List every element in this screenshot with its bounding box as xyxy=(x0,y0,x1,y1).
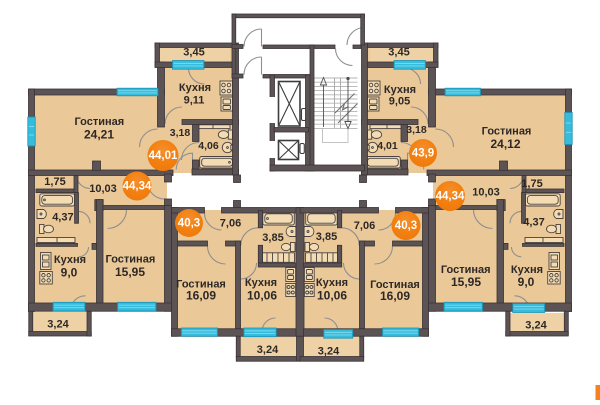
svg-text:3,24: 3,24 xyxy=(525,320,547,332)
svg-text:Кухня: Кухня xyxy=(179,82,211,94)
svg-text:7,06: 7,06 xyxy=(354,220,375,232)
svg-text:Кухня: Кухня xyxy=(384,84,416,96)
svg-text:9,0: 9,0 xyxy=(61,266,78,280)
svg-text:44,34: 44,34 xyxy=(436,191,465,203)
svg-text:15,95: 15,95 xyxy=(115,265,145,279)
svg-text:Кухня: Кухня xyxy=(54,254,86,266)
svg-text:43,9: 43,9 xyxy=(412,148,434,160)
svg-text:40,3: 40,3 xyxy=(395,220,417,232)
svg-text:40,3: 40,3 xyxy=(178,218,200,230)
svg-text:10,03: 10,03 xyxy=(89,183,117,195)
svg-text:9,11: 9,11 xyxy=(184,95,205,107)
svg-text:1,75: 1,75 xyxy=(521,178,542,190)
svg-text:3,24: 3,24 xyxy=(257,344,279,356)
svg-text:4,06: 4,06 xyxy=(198,140,219,152)
svg-text:9,05: 9,05 xyxy=(389,96,410,108)
svg-text:Кухня: Кухня xyxy=(245,277,277,289)
svg-text:10,06: 10,06 xyxy=(317,289,347,303)
svg-text:10,06: 10,06 xyxy=(247,289,277,303)
svg-text:24,12: 24,12 xyxy=(490,137,520,151)
svg-text:3,18: 3,18 xyxy=(170,127,191,139)
svg-text:10,03: 10,03 xyxy=(472,187,500,199)
svg-text:Гостиная: Гостиная xyxy=(74,116,124,128)
svg-text:Гостиная: Гостиная xyxy=(441,264,491,276)
svg-text:3,85: 3,85 xyxy=(316,231,337,243)
svg-text:44,01: 44,01 xyxy=(149,150,178,162)
svg-text:44,34: 44,34 xyxy=(123,181,152,193)
svg-text:3,45: 3,45 xyxy=(388,46,409,58)
svg-text:3,24: 3,24 xyxy=(47,319,69,331)
svg-text:Кухня: Кухня xyxy=(316,277,348,289)
svg-text:Гостиная: Гостиная xyxy=(482,126,532,138)
svg-text:Гостиная: Гостиная xyxy=(106,253,156,265)
svg-text:3,24: 3,24 xyxy=(318,346,340,358)
svg-text:15,95: 15,95 xyxy=(451,275,481,289)
svg-text:9,0: 9,0 xyxy=(518,275,535,289)
svg-text:3,18: 3,18 xyxy=(406,124,427,136)
svg-text:4,37: 4,37 xyxy=(523,216,544,228)
svg-text:3,85: 3,85 xyxy=(262,232,283,244)
svg-text:4,01: 4,01 xyxy=(377,140,398,152)
svg-text:3,45: 3,45 xyxy=(183,46,204,58)
svg-text:1,75: 1,75 xyxy=(44,176,65,188)
svg-text:4,37: 4,37 xyxy=(52,212,73,224)
svg-text:7,06: 7,06 xyxy=(220,218,241,230)
svg-text:16,09: 16,09 xyxy=(186,289,216,303)
svg-text:24,21: 24,21 xyxy=(84,127,114,141)
svg-text:16,09: 16,09 xyxy=(380,289,410,303)
